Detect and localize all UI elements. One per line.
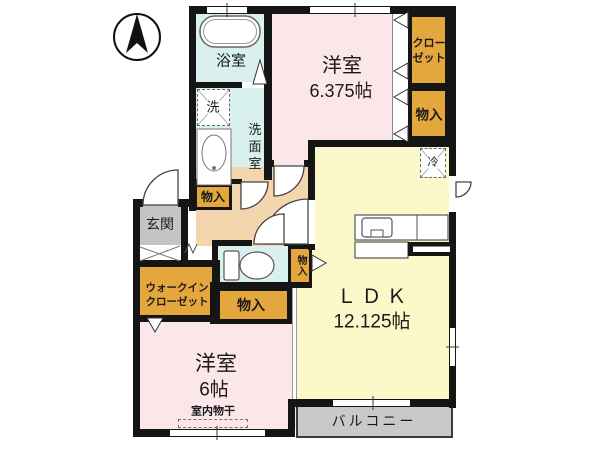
wall [308,140,456,147]
bedroom-top-label: 洋室 [322,56,362,76]
exterior-door-arc [456,182,471,197]
storage-label-lower: 物入 [237,298,265,312]
ldk-label: ＬＤＫ [337,287,412,307]
wall [196,179,242,184]
indoor-drying-marker [178,419,248,428]
window [333,399,410,407]
bedroom-bottom-label: 洋室 [195,354,237,375]
wall [133,260,220,267]
floor-plan: 浴室 洗 洗面室 物入 玄関 物入 物入 ウォークイン クローゼット 洋室 6.… [0,0,600,450]
storage-label-right: 物入 [416,108,443,122]
compass-icon [114,14,160,60]
door-opening [308,200,315,244]
washroom-label: 洗面室 [248,123,261,174]
door-opening [449,176,456,212]
window [449,328,456,366]
entrance-label: 玄関 [146,217,174,231]
closet-label-2: ゼット [413,54,446,65]
room-boundary-line [292,285,297,399]
bedroom-top-size: 6.375帖 [309,82,372,100]
bathroom-label: 浴室 [216,54,246,69]
bedroom-bottom-size: 6帖 [199,381,229,400]
closet-label-1: クロー [413,39,446,50]
wall [133,315,220,322]
storage-label-vertical: 物入 [295,255,305,277]
front-door-arc [143,170,178,205]
closet-box [408,13,449,87]
toilet-area [218,246,288,282]
wall [264,6,272,180]
storage-label-upper: 物入 [201,191,225,203]
ldk-room-area [296,147,449,399]
window [310,6,390,14]
window [207,6,247,14]
wall [264,160,274,167]
wall [213,260,220,322]
wall [210,282,312,288]
window [170,429,265,437]
closet-door-track [392,13,409,140]
ldk-size: 12.125帖 [333,313,410,332]
wall [181,199,188,263]
walk-in-closet-label-1: ウォークイン [146,283,209,294]
walk-in-closet-label-2: クローゼット [146,297,209,308]
fridge-label: 冷 [427,158,440,169]
indoor-drying-label: 室内物干 [191,407,235,418]
wall [284,240,310,246]
wall [189,6,196,211]
bathroom-area [196,13,264,82]
wall [189,82,242,88]
bedroom-top-area-ext [272,140,308,167]
balcony-label: バルコニー [332,414,417,428]
wall [212,240,252,246]
wall [308,140,315,200]
washer-label: 洗 [205,101,220,114]
wall [288,399,295,437]
